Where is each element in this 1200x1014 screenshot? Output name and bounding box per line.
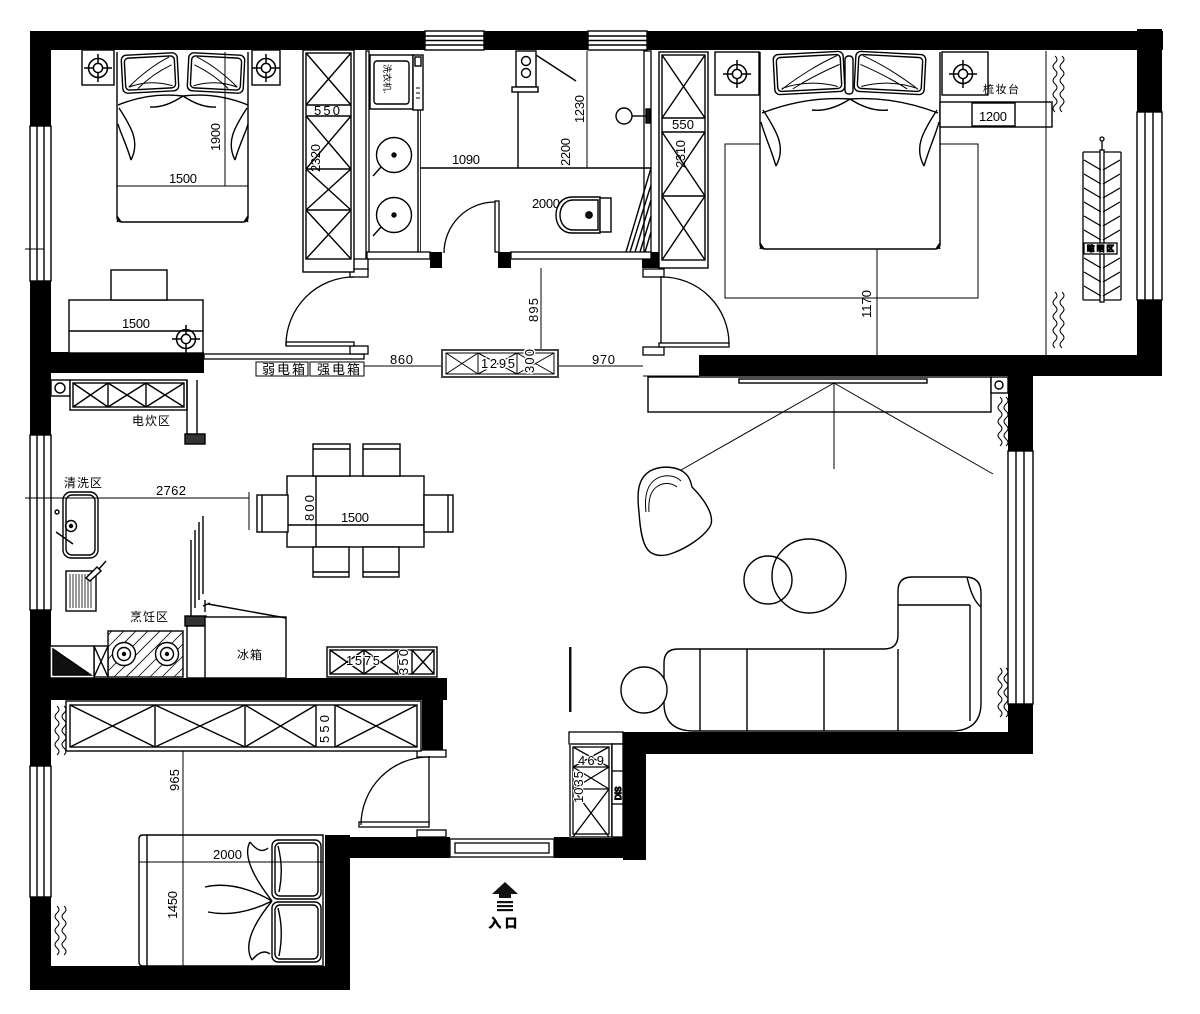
svg-text:1900: 1900 [208,123,223,151]
svg-text:DIS: DIS [614,787,623,800]
svg-text:300: 300 [522,349,537,373]
svg-text:2200: 2200 [558,138,573,166]
svg-text:860: 860 [390,352,413,367]
svg-text:1575: 1575 [346,653,380,668]
svg-text:550: 550 [314,103,340,118]
svg-text:895: 895 [526,298,541,322]
svg-text:469: 469 [578,753,604,768]
svg-text:1500: 1500 [169,171,197,186]
svg-text:1090: 1090 [452,152,480,167]
svg-text:550: 550 [317,715,332,743]
svg-text:965: 965 [167,769,182,791]
svg-text:1500: 1500 [122,316,150,331]
svg-text:弱电箱: 弱电箱 [262,362,305,377]
svg-text:1170: 1170 [859,290,874,318]
svg-text:2310: 2310 [673,140,688,168]
svg-text:强电箱: 强电箱 [317,362,360,377]
svg-text:1295: 1295 [481,356,515,371]
svg-text:350: 350 [396,649,411,675]
svg-text:2762: 2762 [156,483,186,498]
svg-text:1500: 1500 [341,510,369,525]
svg-text:烹饪区: 烹饪区 [130,609,168,624]
svg-text:梳妆台: 梳妆台 [983,82,1019,96]
svg-text:电炊区: 电炊区 [132,414,170,428]
svg-text:洗衣机.: 洗衣机. [382,64,393,94]
svg-text:晾晒区: 晾晒区 [1087,243,1115,253]
svg-text:1450: 1450 [165,891,180,919]
svg-text:2000: 2000 [532,196,560,211]
svg-text:1230: 1230 [572,95,587,123]
svg-text:冰箱: 冰箱 [237,647,262,662]
svg-text:2000: 2000 [213,847,242,862]
svg-text:970: 970 [592,352,615,367]
svg-text:清洗区: 清洗区 [64,476,102,490]
svg-text:550: 550 [672,117,694,132]
svg-text:1200: 1200 [979,109,1007,124]
svg-text:1035: 1035 [571,771,586,803]
svg-text:2320: 2320 [308,144,323,172]
svg-text:800: 800 [302,495,317,521]
